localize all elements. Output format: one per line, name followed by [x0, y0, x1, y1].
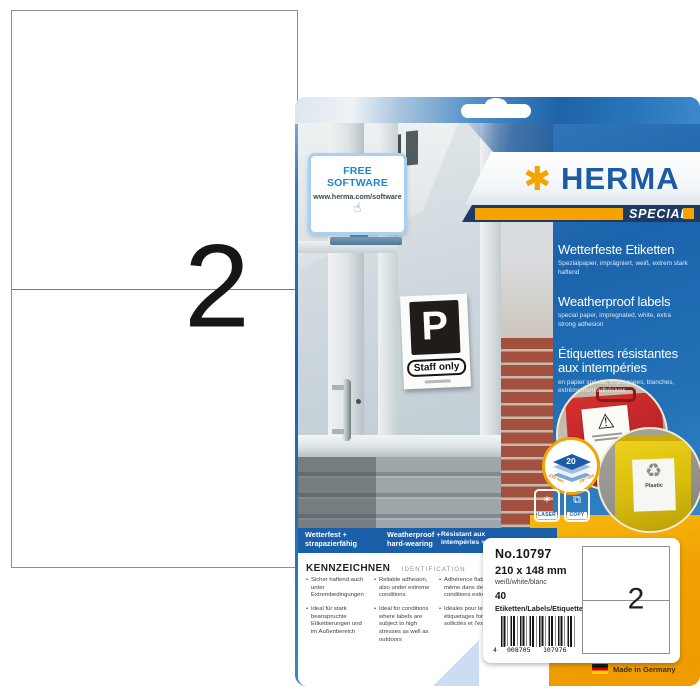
brand-logo-text: HERMA	[561, 161, 680, 197]
label-quantity-unit: Etiketten/Labels/Etiquettes	[495, 604, 587, 613]
identification-col-de: Sicher haftend auch unter Extrembedingun…	[306, 577, 368, 643]
feature-en: Weatherproof + hard-wearing	[387, 531, 449, 548]
identification-heading: KENNZEICHNEN IDENTIFICATION	[306, 558, 466, 576]
headline-en: Weatherproof labels special paper, impre…	[558, 295, 698, 329]
copy-compatibility-badge: ⧉ COPY	[564, 489, 590, 522]
headline-en-sub: special paper, impregnated, white, extra…	[558, 312, 688, 329]
door-frame-rail	[298, 435, 501, 457]
label-dimensions: 210 x 148 mm	[495, 565, 567, 577]
free-software-badge: FREE SOFTWARE www.herma.com/software ☝	[308, 153, 407, 235]
laser-label: LASER	[537, 512, 557, 519]
headline-fr: Étiquettes résistantes aux intempéries e…	[558, 347, 698, 395]
monitor-stand	[330, 237, 402, 245]
identification-col-en: Reliable adhesion, also under extreme co…	[374, 577, 436, 650]
headline-fr-sub: en papier spécial, imprégnées, blanches,…	[558, 379, 688, 396]
made-in-row: Made in Germany	[592, 664, 676, 674]
identification-heading-de: KENNZEICHNEN	[306, 563, 390, 574]
sign-caption: Staff only	[407, 358, 467, 378]
barcode-bars	[501, 616, 577, 647]
sheet-count-badge: 20 210 mm 297 mm	[542, 437, 600, 495]
free-software-url: www.herma.com/software	[311, 192, 404, 201]
handle-mount	[332, 385, 344, 390]
sign-smallprint	[424, 379, 450, 383]
label-layout-diagram: 2	[582, 546, 670, 654]
headline-en-title: Weatherproof labels	[558, 295, 698, 309]
recycle-icon: ♻	[632, 461, 675, 482]
series-label: SPECIAL	[629, 207, 689, 221]
bullet-item: Ideal für stark beanspruchte Etikettieru…	[306, 606, 368, 637]
special-accent-bar	[475, 208, 623, 220]
feature-de: Wetterfest + strapazierfähig	[305, 531, 371, 548]
german-flag-icon	[592, 664, 608, 674]
barcode-digit-lead: 4	[493, 646, 497, 654]
headline-de-title: Wetterfeste Etiketten	[558, 243, 698, 257]
warning-triangle-icon: ⚠	[582, 409, 630, 434]
special-accent-chip	[683, 208, 694, 219]
barcode-digits-group2: 107976	[541, 646, 568, 654]
usage-photo-bin: ♻ Plastic	[597, 427, 700, 533]
copy-label: COPY	[567, 512, 587, 519]
decor-triangle	[433, 640, 479, 686]
package: FREE SOFTWARE www.herma.com/software ☝ P…	[295, 97, 700, 686]
label-quantity: 40	[495, 591, 506, 602]
headline-fr-title: Étiquettes résistantes aux intempéries	[558, 347, 698, 376]
copy-icon: ⧉	[566, 491, 588, 508]
info-card: No.10797 210 x 148 mm weiß/white/blanc 4…	[483, 538, 680, 663]
product-number: No.10797	[495, 547, 552, 561]
special-band: SPECIAL	[462, 205, 700, 222]
bin-recycle-label: ♻ Plastic	[632, 458, 676, 511]
laser-icon: ✶	[536, 491, 558, 508]
bin-label-text: Plastic	[633, 482, 675, 489]
product-shot: 2 FREE SOFTWARE	[0, 0, 700, 700]
laser-compatibility-badge: ✶ LASER	[534, 489, 560, 522]
headline-de-sub: Spezialpapier, imprägniert, weiß, extrem…	[558, 260, 688, 277]
badge-sheet-count: 20	[545, 456, 597, 466]
bullet-item: Reliable adhesion, also under extreme co…	[374, 577, 436, 600]
reflected-window	[406, 130, 418, 165]
herma-asterisk-icon: ✱	[523, 162, 551, 195]
brand-band: ✱ HERMA	[465, 152, 700, 205]
diagram-divider-line	[583, 600, 669, 601]
made-in-text: Made in Germany	[613, 665, 676, 674]
bullet-item: Sicher haftend auch unter Extrembedingun…	[306, 577, 368, 600]
identification-heading-en: IDENTIFICATION	[402, 567, 466, 573]
handle-mount	[332, 429, 344, 434]
staff-only-sign: P Staff only	[400, 294, 471, 390]
headline-de: Wetterfeste Etiketten Spezialpapier, imp…	[558, 243, 698, 277]
label-sheet-preview: 2	[11, 10, 298, 568]
diagram-label-count: 2	[628, 584, 645, 614]
barcode-digits-group1: 008705	[505, 646, 532, 654]
label-colour: weiß/white/blanc	[495, 579, 547, 586]
door-lock	[356, 399, 361, 404]
ean-barcode: 4 008705 107976	[493, 616, 577, 654]
hang-hole-icon	[461, 104, 531, 118]
bullet-item: Ideal for conditions where labels are su…	[374, 606, 436, 644]
free-software-title: FREE SOFTWARE	[311, 165, 404, 189]
parking-letter: P	[409, 300, 460, 355]
sheet-label-count: 2	[162, 228, 272, 346]
hand-cursor-icon: ☝	[311, 202, 404, 215]
